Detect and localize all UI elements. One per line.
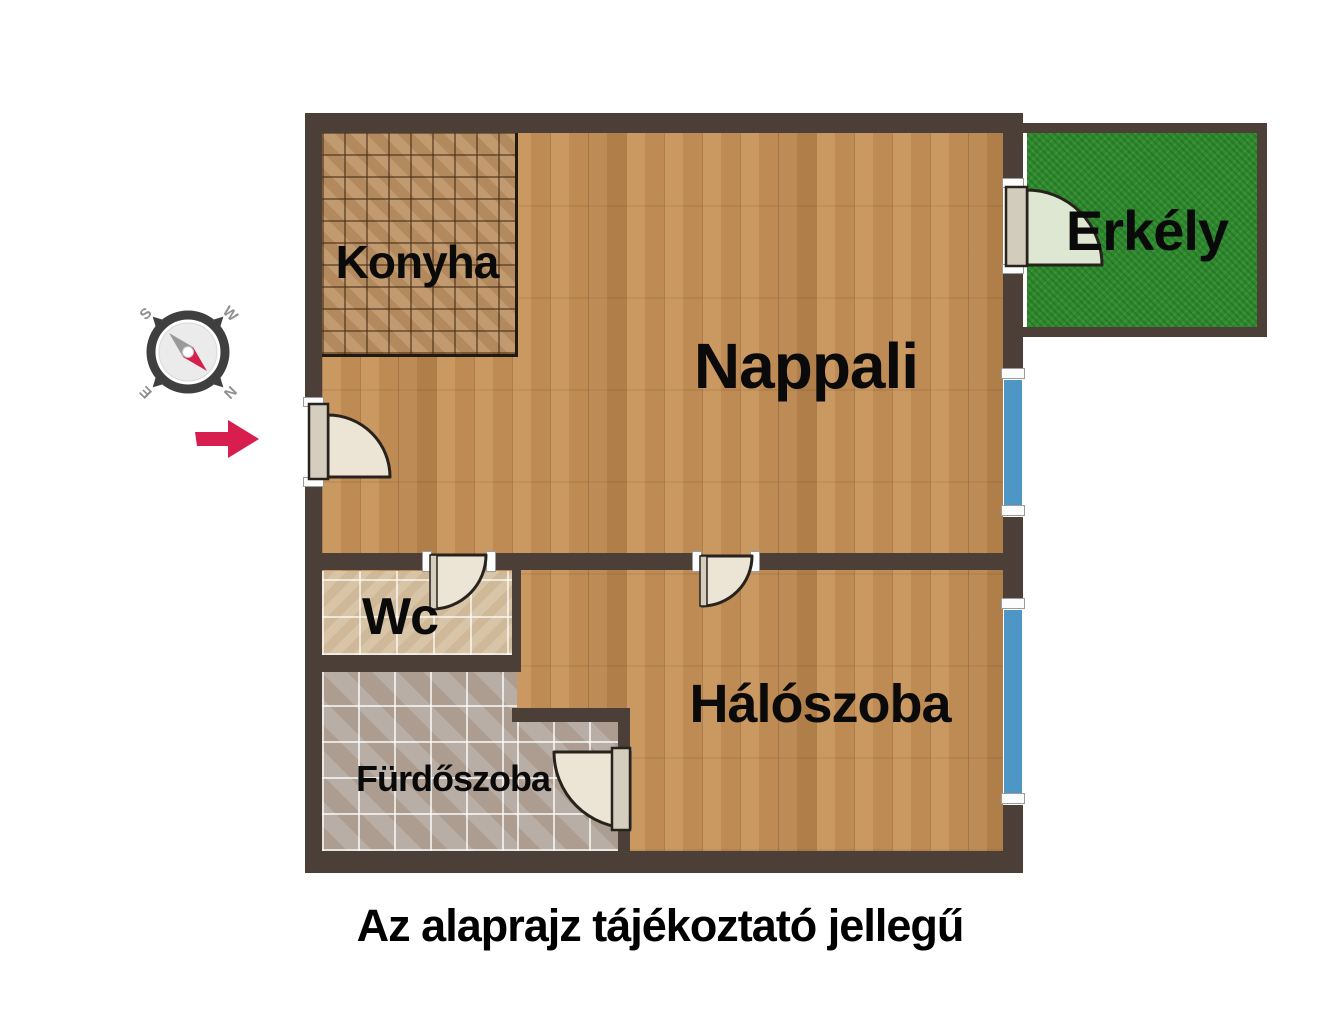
room-label-nappali: Nappali (694, 334, 918, 398)
room-label-konyha: Konyha (336, 239, 499, 285)
caption: Az alaprajz tájékoztató jellegű (357, 900, 964, 952)
room-label-haloszoba: Hálószoba (689, 677, 950, 731)
entrance-door-swing (328, 415, 390, 477)
room-label-erkely: Erkély (1066, 203, 1228, 259)
room-label-furdoszoba: Fürdőszoba (356, 761, 550, 797)
entrance-door-leaf (309, 404, 328, 479)
compass-letter-e: E (136, 382, 155, 401)
overlay-graphics: S W E N (0, 0, 1340, 1020)
direction-arrow-icon (195, 420, 259, 458)
room-label-wc: Wc (362, 591, 438, 643)
compass-letter-s: S (136, 304, 155, 323)
compass-letter-n: N (220, 382, 240, 402)
compass-hub (183, 347, 194, 358)
compass-icon: S W E N (136, 303, 241, 402)
wc-door-swing (432, 555, 486, 609)
compass-letter-w: W (219, 303, 242, 326)
bedroom-door-swing (702, 556, 752, 606)
floorplan-canvas: S W E N Konyha Nappali Erkély Wc Hálószo… (0, 0, 1340, 1020)
balcony-door-leaf (1006, 187, 1027, 266)
bathroom-door-leaf (612, 748, 630, 830)
bedroom-door-leaf (700, 556, 707, 606)
